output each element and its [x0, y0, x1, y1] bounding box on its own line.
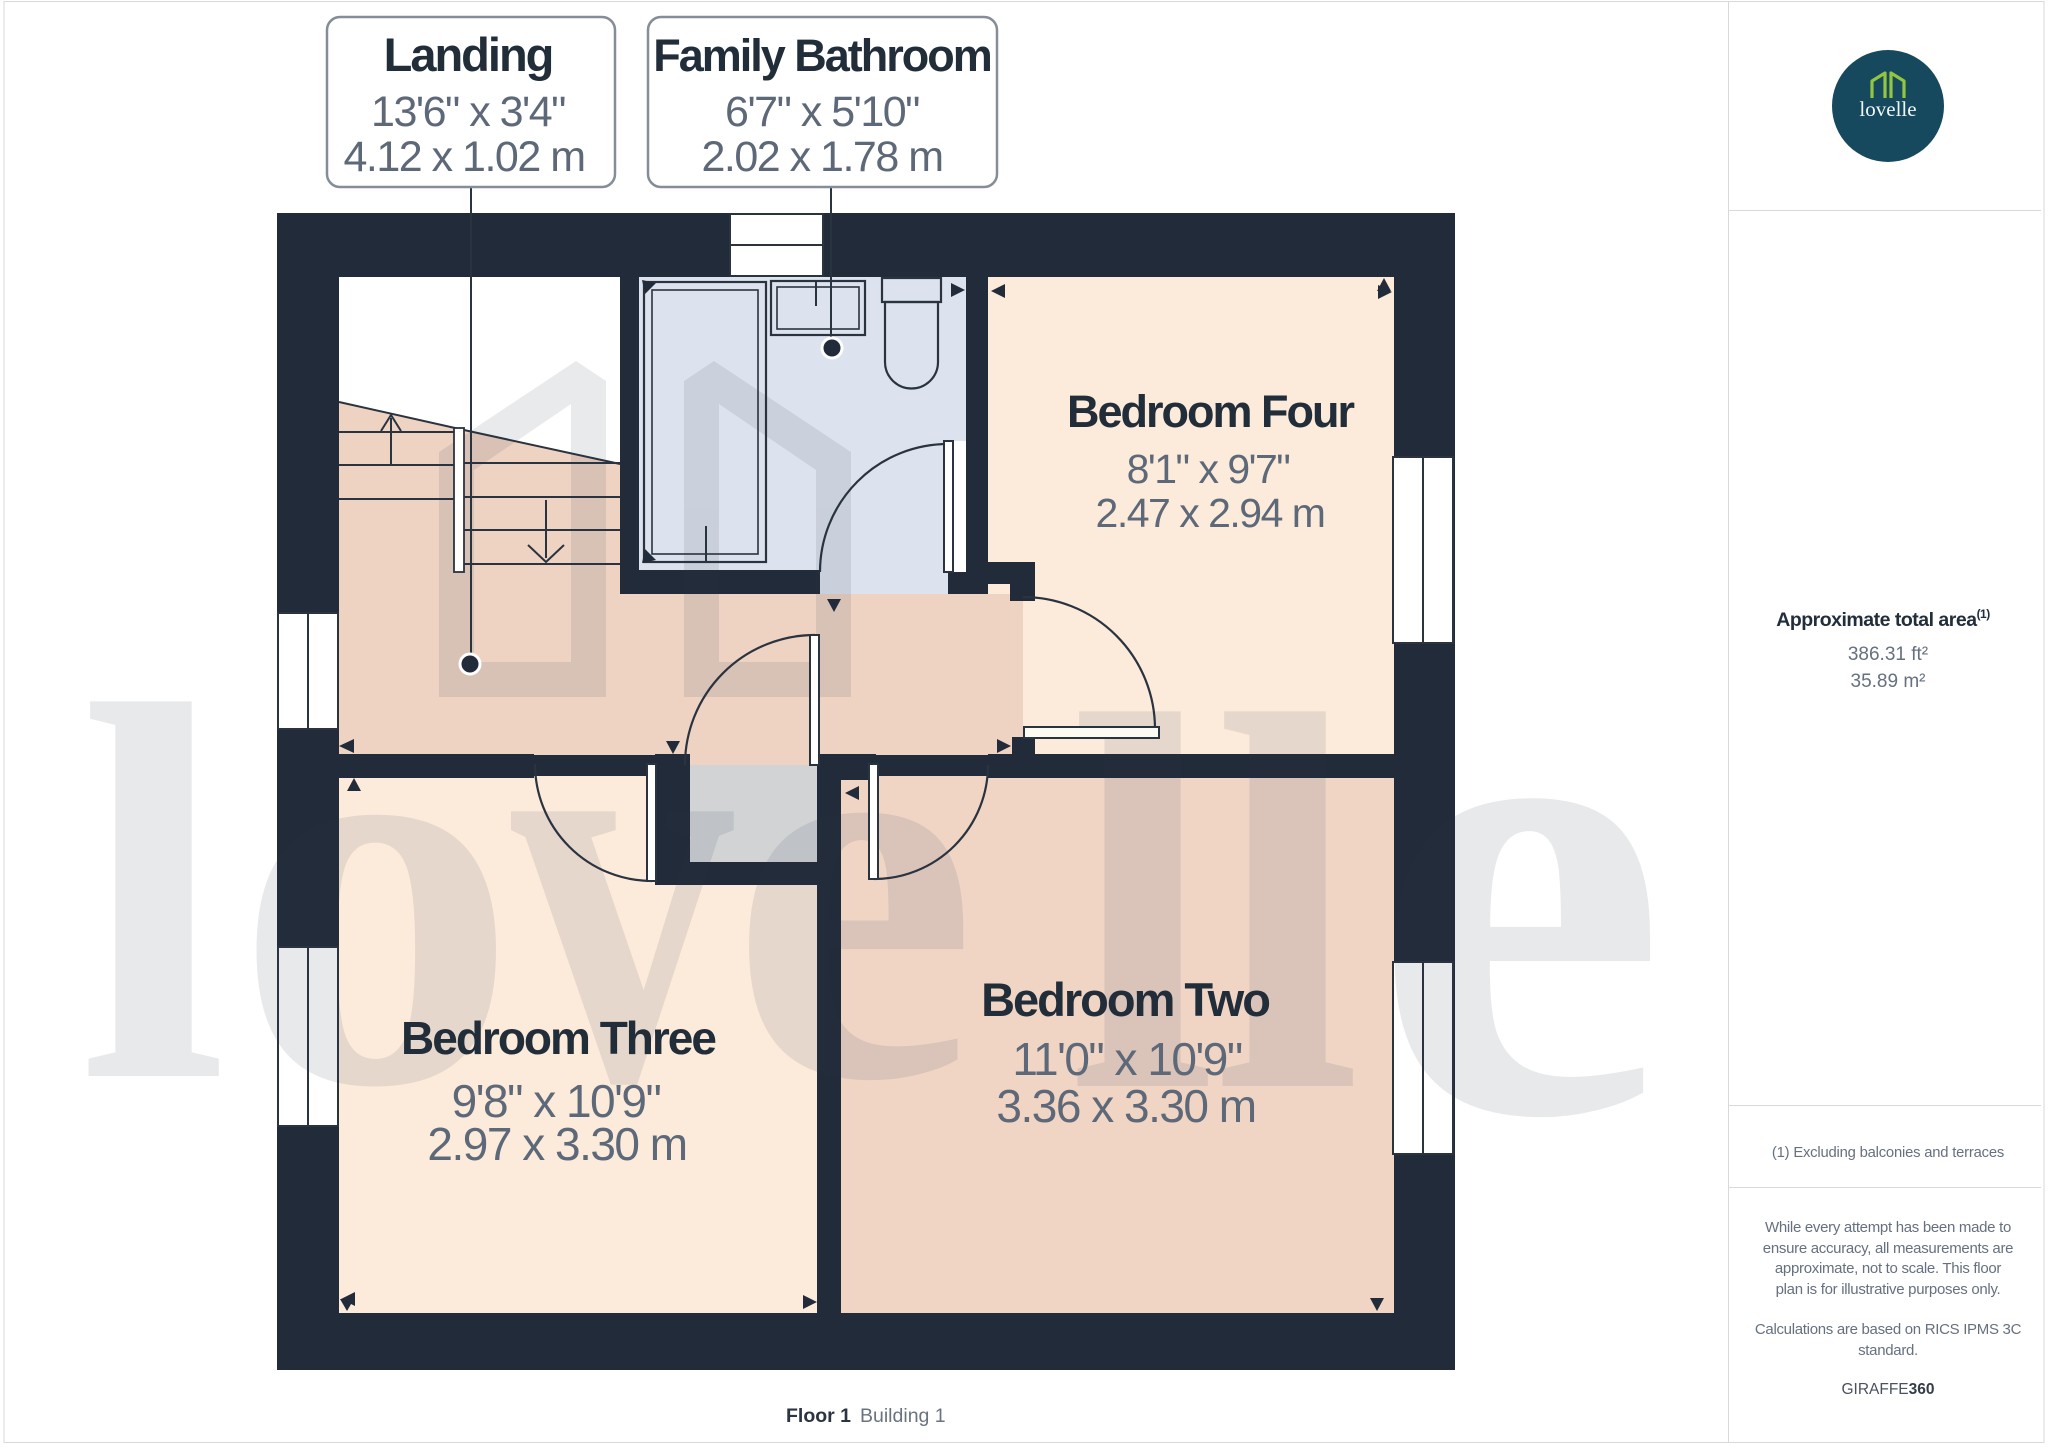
svg-text:(1) Excluding balconies and te: (1) Excluding balconies and terraces	[1772, 1145, 2004, 1161]
svg-text:8'1" x 9'7": 8'1" x 9'7"	[1127, 446, 1290, 492]
svg-text:ensure accuracy, all measureme: ensure accuracy, all measurements are	[1763, 1240, 2013, 1257]
svg-text:Bedroom Two: Bedroom Two	[981, 973, 1269, 1026]
svg-text:lovelle: lovelle	[1859, 97, 1916, 121]
svg-text:3.36 x 3.30 m: 3.36 x 3.30 m	[996, 1080, 1255, 1132]
svg-text:Landing: Landing	[384, 28, 553, 81]
svg-text:2.02 x 1.78 m: 2.02 x 1.78 m	[701, 133, 942, 181]
svg-text:l: l	[78, 595, 228, 1193]
svg-text:11'0" x 10'9": 11'0" x 10'9"	[1012, 1033, 1242, 1085]
svg-text:Building 1: Building 1	[860, 1405, 946, 1427]
svg-text:35.89 m²: 35.89 m²	[1851, 671, 1926, 692]
svg-text:GIRAFFE360: GIRAFFE360	[1841, 1381, 1934, 1398]
svg-text:Bedroom Four: Bedroom Four	[1067, 386, 1354, 437]
svg-text:Approximate total area(1): Approximate total area(1)	[1776, 607, 1990, 631]
svg-text:approximate, not to scale. Thi: approximate, not to scale. This floor	[1775, 1260, 2002, 1277]
svg-text:plan is for illustrative purpo: plan is for illustrative purposes only.	[1776, 1281, 2001, 1298]
svg-text:6'7" x 5'10": 6'7" x 5'10"	[725, 88, 919, 136]
svg-text:13'6" x 3'4": 13'6" x 3'4"	[371, 88, 565, 136]
svg-text:386.31 ft²: 386.31 ft²	[1848, 644, 1928, 665]
svg-text:Family Bathroom: Family Bathroom	[653, 30, 991, 81]
svg-text:standard.: standard.	[1858, 1342, 1918, 1359]
svg-text:e: e	[1372, 518, 1667, 1255]
svg-text:While every attempt has been m: While every attempt has been made to	[1765, 1219, 2011, 1236]
svg-text:4.12 x 1.02 m: 4.12 x 1.02 m	[343, 133, 584, 181]
svg-text:2.47 x 2.94 m: 2.47 x 2.94 m	[1096, 490, 1325, 536]
svg-text:Calculations are based on RICS: Calculations are based on RICS IPMS 3C	[1755, 1321, 2022, 1338]
svg-text:Bedroom Three: Bedroom Three	[401, 1012, 716, 1064]
svg-text:2.97 x 3.30 m: 2.97 x 3.30 m	[427, 1118, 686, 1170]
svg-text:Floor 1: Floor 1	[786, 1405, 851, 1427]
